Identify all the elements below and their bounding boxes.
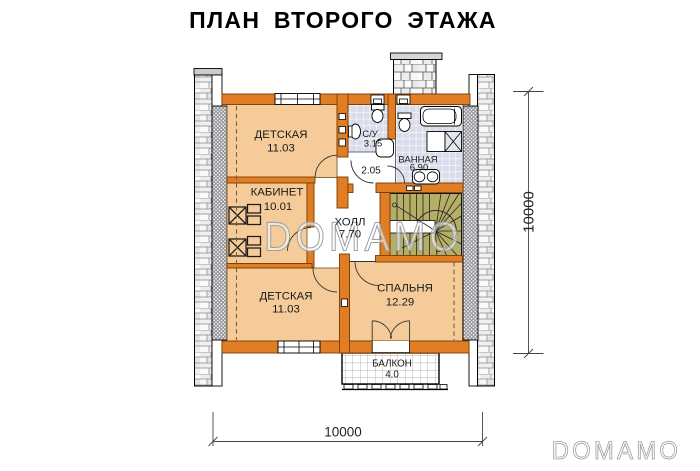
svg-text:12.29: 12.29: [386, 297, 415, 309]
svg-text:ПЛАН ВТОРОГО ЭТАЖА: ПЛАН ВТОРОГО ЭТАЖА: [189, 7, 497, 33]
svg-text:БАЛКОН: БАЛКОН: [372, 359, 412, 370]
svg-text:4.0: 4.0: [385, 370, 399, 381]
svg-text:7.70: 7.70: [339, 229, 361, 241]
svg-text:6.90: 6.90: [410, 163, 429, 174]
svg-text:11.03: 11.03: [272, 304, 300, 316]
svg-text:ХОЛЛ: ХОЛЛ: [335, 217, 366, 229]
svg-text:10000: 10000: [324, 425, 362, 440]
svg-text:КАБИНЕТ: КАБИНЕТ: [251, 187, 304, 199]
svg-text:10.01: 10.01: [264, 201, 293, 213]
svg-text:3.15: 3.15: [364, 139, 383, 150]
svg-text:10000: 10000: [521, 191, 538, 233]
svg-text:СПАЛЬНЯ: СПАЛЬНЯ: [377, 283, 433, 295]
svg-text:ДЕТСКАЯ: ДЕТСКАЯ: [255, 129, 308, 141]
svg-text:2.05: 2.05: [361, 166, 381, 177]
svg-text:ДЕТСКАЯ: ДЕТСКАЯ: [260, 291, 313, 303]
svg-text:DOMAMO: DOMAMO: [552, 437, 681, 465]
svg-text:11.03: 11.03: [267, 143, 295, 155]
